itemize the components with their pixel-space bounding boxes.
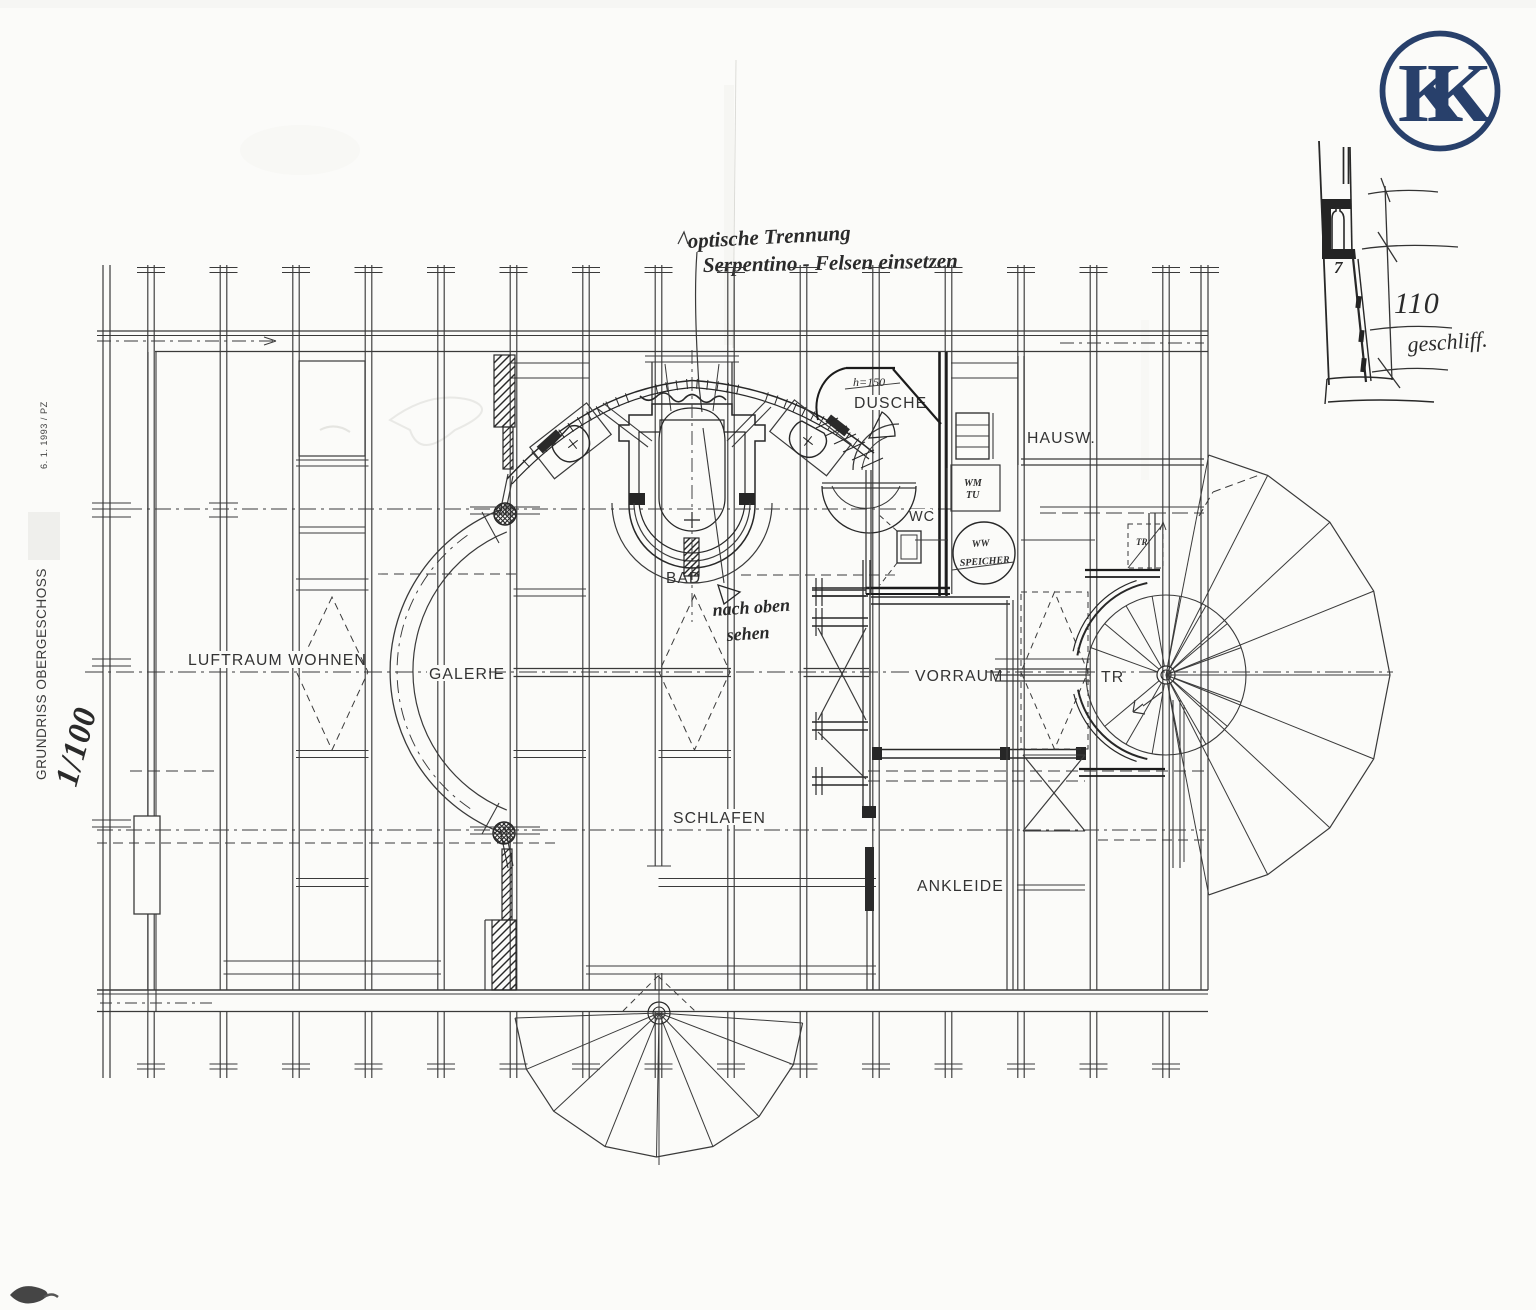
- svg-text:110: 110: [1394, 287, 1440, 320]
- svg-text:TR: TR: [1101, 669, 1124, 686]
- svg-text:WC: WC: [909, 509, 935, 525]
- svg-text:h=150: h=150: [853, 375, 885, 389]
- svg-text:VORRAUM: VORRAUM: [915, 668, 1003, 685]
- svg-text:HAUSW.: HAUSW.: [1027, 430, 1096, 447]
- svg-text:SCHLAFEN: SCHLAFEN: [673, 810, 766, 827]
- svg-text:ANKLEIDE: ANKLEIDE: [917, 878, 1004, 895]
- svg-text:GALERIE: GALERIE: [429, 666, 505, 683]
- svg-text:K: K: [1427, 47, 1492, 140]
- svg-text:TR: TR: [1136, 537, 1148, 547]
- svg-text:GRUNDRISS OBERGESCHOSS: GRUNDRISS OBERGESCHOSS: [34, 568, 49, 780]
- svg-text:sehen: sehen: [725, 622, 770, 645]
- svg-text:WW: WW: [971, 538, 991, 550]
- svg-text:WM: WM: [964, 478, 983, 489]
- svg-text:6. 1. 1993 / PZ: 6. 1. 1993 / PZ: [39, 401, 49, 469]
- svg-text:TU: TU: [966, 490, 980, 501]
- svg-text:DUSCHE: DUSCHE: [854, 395, 927, 412]
- svg-text:LUFTRAUM WOHNEN: LUFTRAUM WOHNEN: [188, 652, 367, 669]
